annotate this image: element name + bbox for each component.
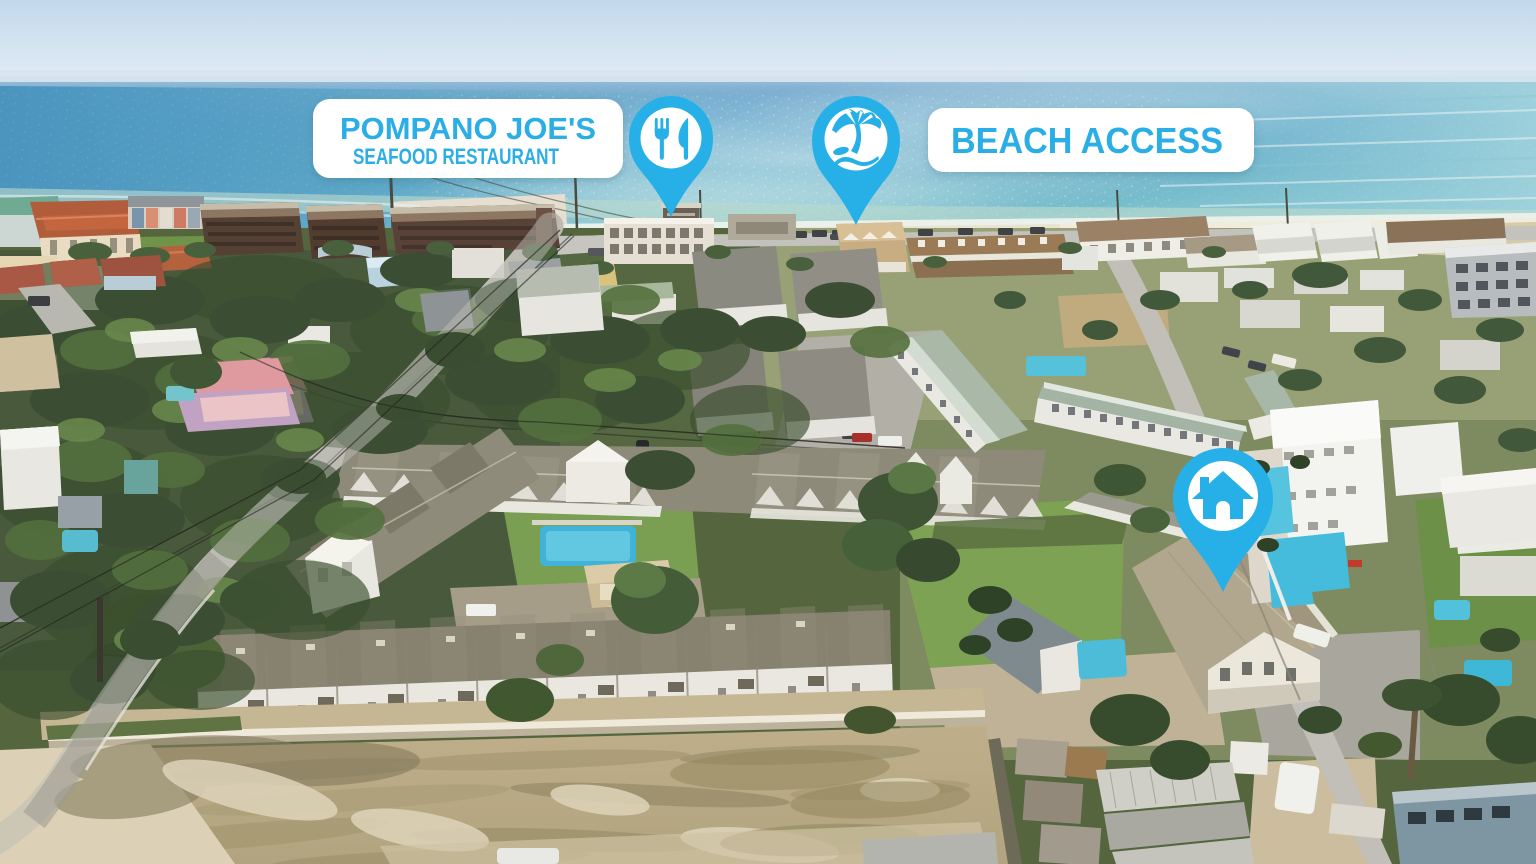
svg-text:SEAFOOD RESTAURANT: SEAFOOD RESTAURANT: [353, 144, 559, 169]
svg-text:BEACH ACCESS: BEACH ACCESS: [951, 120, 1223, 161]
svg-text:POMPANO JOE'S: POMPANO JOE'S: [340, 111, 596, 146]
